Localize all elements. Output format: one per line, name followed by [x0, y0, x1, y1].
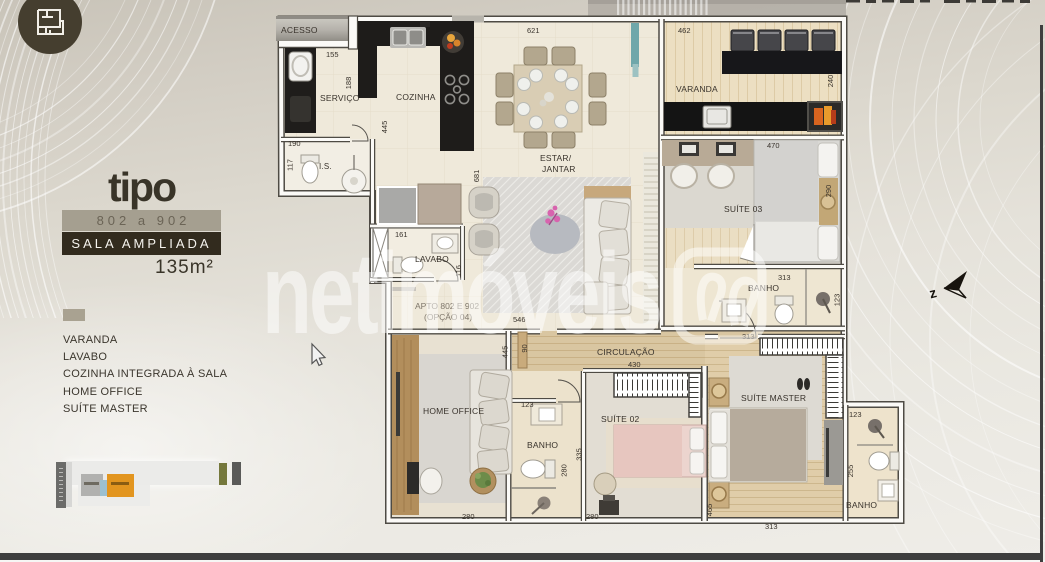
svg-text:280: 280: [462, 512, 475, 521]
svg-text:ACESSO: ACESSO: [281, 25, 318, 35]
svg-text:280: 280: [560, 464, 569, 477]
svg-text:465: 465: [705, 504, 714, 517]
svg-text:BANHO: BANHO: [527, 440, 558, 450]
svg-text:621: 621: [527, 26, 540, 35]
svg-text:445: 445: [380, 121, 389, 134]
svg-text:188: 188: [344, 77, 353, 90]
svg-text:z: z: [928, 284, 939, 301]
svg-text:VARANDA: VARANDA: [676, 84, 718, 94]
svg-text:COZINHA: COZINHA: [396, 92, 436, 102]
svg-text:123: 123: [849, 410, 862, 419]
svg-text:I.S.: I.S.: [319, 162, 332, 171]
svg-text:681: 681: [472, 170, 481, 183]
svg-text:313: 313: [765, 522, 778, 531]
svg-text:ESTAR/: ESTAR/: [540, 153, 572, 163]
svg-text:290: 290: [824, 185, 833, 198]
svg-text:HOME OFFICE: HOME OFFICE: [423, 406, 484, 416]
svg-text:155: 155: [326, 50, 339, 59]
svg-text:SUÍTE 03: SUÍTE 03: [724, 204, 763, 214]
svg-text:123: 123: [833, 294, 842, 307]
svg-text:netimóveis: netimóveis: [262, 230, 660, 358]
svg-text:SERVIÇO: SERVIÇO: [320, 93, 360, 103]
svg-text:JANTAR: JANTAR: [542, 164, 576, 174]
svg-text:123: 123: [521, 400, 534, 409]
svg-text:430: 430: [628, 360, 641, 369]
svg-text:280: 280: [586, 512, 599, 521]
svg-text:255: 255: [846, 465, 855, 478]
svg-text:335: 335: [575, 448, 584, 461]
svg-text:462: 462: [678, 26, 691, 35]
svg-text:470: 470: [767, 141, 780, 150]
svg-text:190: 190: [288, 139, 301, 148]
svg-text:117: 117: [286, 159, 295, 171]
svg-text:240: 240: [826, 75, 835, 88]
svg-text:BANHO: BANHO: [846, 500, 877, 510]
svg-text:SUÍTE MASTER: SUÍTE MASTER: [741, 393, 806, 403]
svg-text:313: 313: [778, 273, 791, 282]
svg-text:SUÍTE 02: SUÍTE 02: [601, 414, 640, 424]
